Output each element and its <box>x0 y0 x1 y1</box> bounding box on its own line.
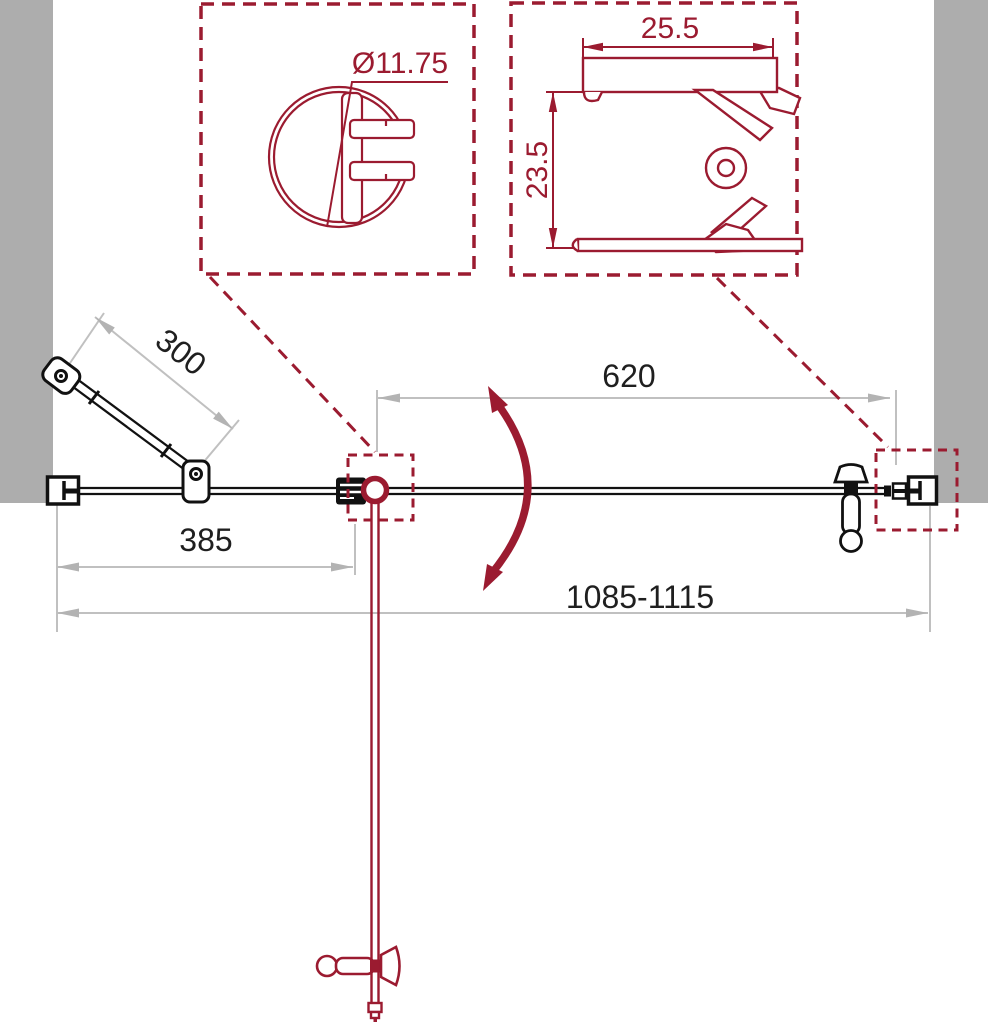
wall-profile-left <box>48 477 81 504</box>
label-profile-height: 23.5 <box>523 141 553 199</box>
callout-leader-right <box>717 278 888 447</box>
support-bar <box>67 377 191 469</box>
support-bar-glass-clamp <box>183 461 209 502</box>
door-handle-open <box>317 947 400 985</box>
wall-right <box>934 0 988 503</box>
label-diameter: Ø11.75 <box>352 49 448 79</box>
bracket-screw-dot <box>59 374 63 378</box>
dimension-door-width <box>377 390 896 465</box>
door-glass-closed <box>388 488 886 494</box>
drawing-canvas <box>0 0 988 1022</box>
technical-drawing: Ø11.75 25.5 23.5 300 620 385 1085-1115 <box>0 0 988 1022</box>
wall-profile-right <box>884 477 937 504</box>
label-door-width: 620 <box>602 360 655 392</box>
hinge-pivot-ring <box>364 479 387 502</box>
detail-box-round-profile <box>201 4 474 274</box>
label-fixed-panel-width: 385 <box>179 524 232 556</box>
door-handle-closed <box>835 465 867 552</box>
door-magnet-tip <box>369 1003 382 1022</box>
detail-round-profile-drawing <box>269 82 448 227</box>
label-total-width: 1085-1115 <box>566 581 714 613</box>
wall-left <box>0 0 53 503</box>
detail-wall-profile-drawing <box>573 58 802 252</box>
label-profile-width: 25.5 <box>641 14 699 44</box>
door-glass-open <box>372 502 379 1004</box>
